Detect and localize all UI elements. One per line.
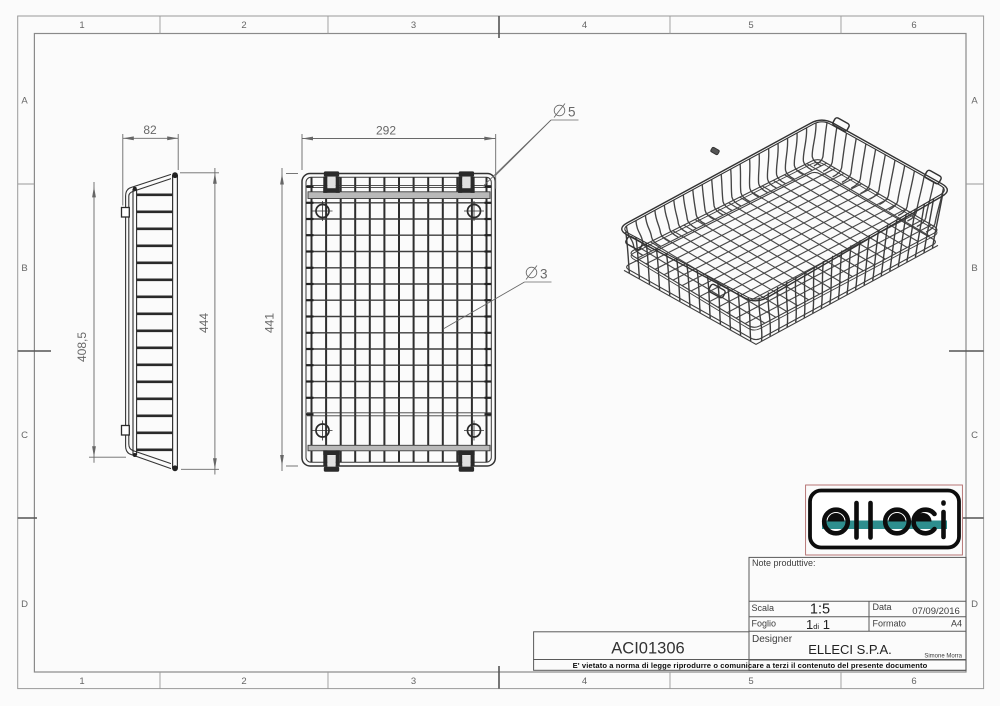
svg-text:1: 1 xyxy=(79,676,84,687)
svg-text:6: 6 xyxy=(911,676,916,687)
svg-text:D: D xyxy=(21,599,28,610)
svg-text:1:5: 1:5 xyxy=(810,602,830,618)
svg-text:07/09/2016: 07/09/2016 xyxy=(912,606,960,617)
svg-text:Scala: Scala xyxy=(752,603,775,613)
svg-text:B: B xyxy=(21,263,27,274)
svg-text:5: 5 xyxy=(748,20,753,31)
svg-text:6: 6 xyxy=(911,20,916,31)
svg-text:5: 5 xyxy=(748,676,753,687)
svg-text:B: B xyxy=(971,263,977,274)
svg-text:Data: Data xyxy=(873,602,892,612)
svg-text:82: 82 xyxy=(143,123,157,137)
svg-text:3: 3 xyxy=(411,20,416,31)
svg-text:C: C xyxy=(971,430,978,441)
svg-text:3: 3 xyxy=(540,267,548,282)
svg-text:3: 3 xyxy=(411,676,416,687)
svg-text:C: C xyxy=(21,430,28,441)
svg-text:Note produttive:: Note produttive: xyxy=(752,558,816,568)
svg-text:2: 2 xyxy=(241,676,246,687)
svg-text:292: 292 xyxy=(376,124,396,138)
svg-text:4: 4 xyxy=(582,20,587,31)
svg-text:4: 4 xyxy=(582,676,587,687)
svg-text:Formato: Formato xyxy=(873,619,907,629)
svg-text:D: D xyxy=(971,599,978,610)
svg-text:Simone Morra: Simone Morra xyxy=(924,654,962,660)
svg-text:441: 441 xyxy=(263,313,277,333)
svg-text:A4: A4 xyxy=(951,619,962,629)
svg-text:2: 2 xyxy=(241,20,246,31)
svg-text:1: 1 xyxy=(79,20,84,31)
svg-text:Foglio: Foglio xyxy=(752,619,777,629)
svg-text:ELLECI S.P.A.: ELLECI S.P.A. xyxy=(808,642,892,657)
svg-text:A: A xyxy=(971,96,978,107)
svg-text:E' vietato a norma di legge ri: E' vietato a norma di legge riprodurre o… xyxy=(573,661,928,670)
svg-text:ACI01306: ACI01306 xyxy=(611,639,684,657)
svg-text:Designer: Designer xyxy=(752,634,793,645)
svg-text:5: 5 xyxy=(568,105,576,120)
svg-text:A: A xyxy=(21,96,28,107)
svg-text:444: 444 xyxy=(197,313,211,333)
svg-text:408,5: 408,5 xyxy=(75,332,89,362)
